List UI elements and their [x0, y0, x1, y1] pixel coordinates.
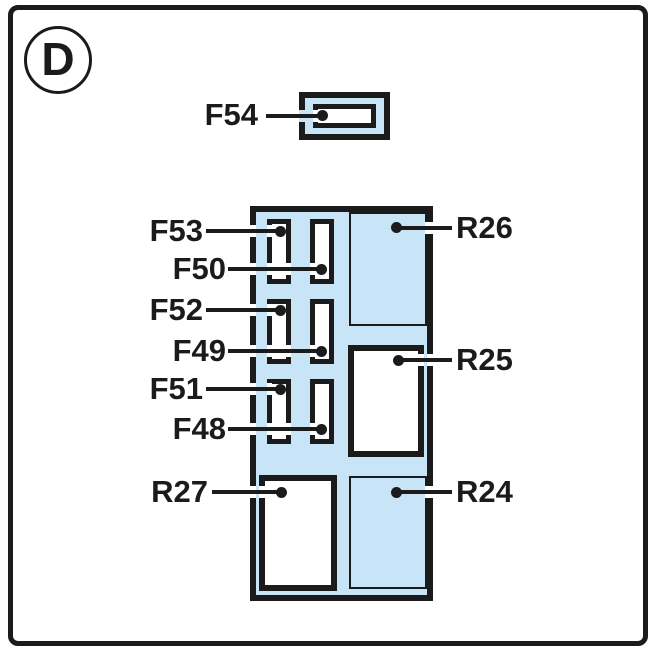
leader-line-f49	[228, 349, 322, 353]
leader-line-f50	[228, 267, 322, 271]
label-f50: F50	[173, 252, 226, 286]
label-r26: R26	[456, 211, 513, 245]
leader-line-f52	[206, 308, 280, 312]
leader-dot-f53	[275, 226, 286, 237]
label-f48: F48	[173, 412, 226, 446]
label-f53: F53	[150, 214, 203, 248]
leader-dot-r24	[391, 487, 402, 498]
leader-line-f53	[206, 229, 280, 233]
label-f49: F49	[173, 334, 226, 368]
label-f52: F52	[150, 293, 203, 327]
leader-dot-f49	[316, 346, 327, 357]
label-r27: R27	[151, 475, 208, 509]
diagram-marker-letter: D	[41, 36, 74, 82]
label-f51: F51	[150, 372, 203, 406]
leader-dot-r27	[276, 487, 287, 498]
label-f54: F54	[205, 98, 258, 132]
fuse-box-diagram: D F54	[0, 0, 655, 655]
leader-dot-r26	[391, 222, 402, 233]
leader-line-r25	[399, 358, 452, 362]
leader-line-f48	[228, 427, 322, 431]
leader-line-r24	[397, 490, 452, 494]
label-r25: R25	[456, 343, 513, 377]
leader-line-f54	[266, 114, 323, 118]
leader-line-r27	[212, 490, 282, 494]
leader-line-f51	[206, 387, 280, 391]
leader-dot-f51	[275, 384, 286, 395]
leader-dot-f54	[317, 110, 328, 121]
leader-dot-r25	[393, 355, 404, 366]
leader-dot-f52	[275, 305, 286, 316]
label-r24: R24	[456, 475, 513, 509]
diagram-marker-circle: D	[24, 26, 92, 94]
leader-dot-f48	[316, 424, 327, 435]
leader-dot-f50	[316, 264, 327, 275]
leader-line-r26	[397, 226, 452, 230]
